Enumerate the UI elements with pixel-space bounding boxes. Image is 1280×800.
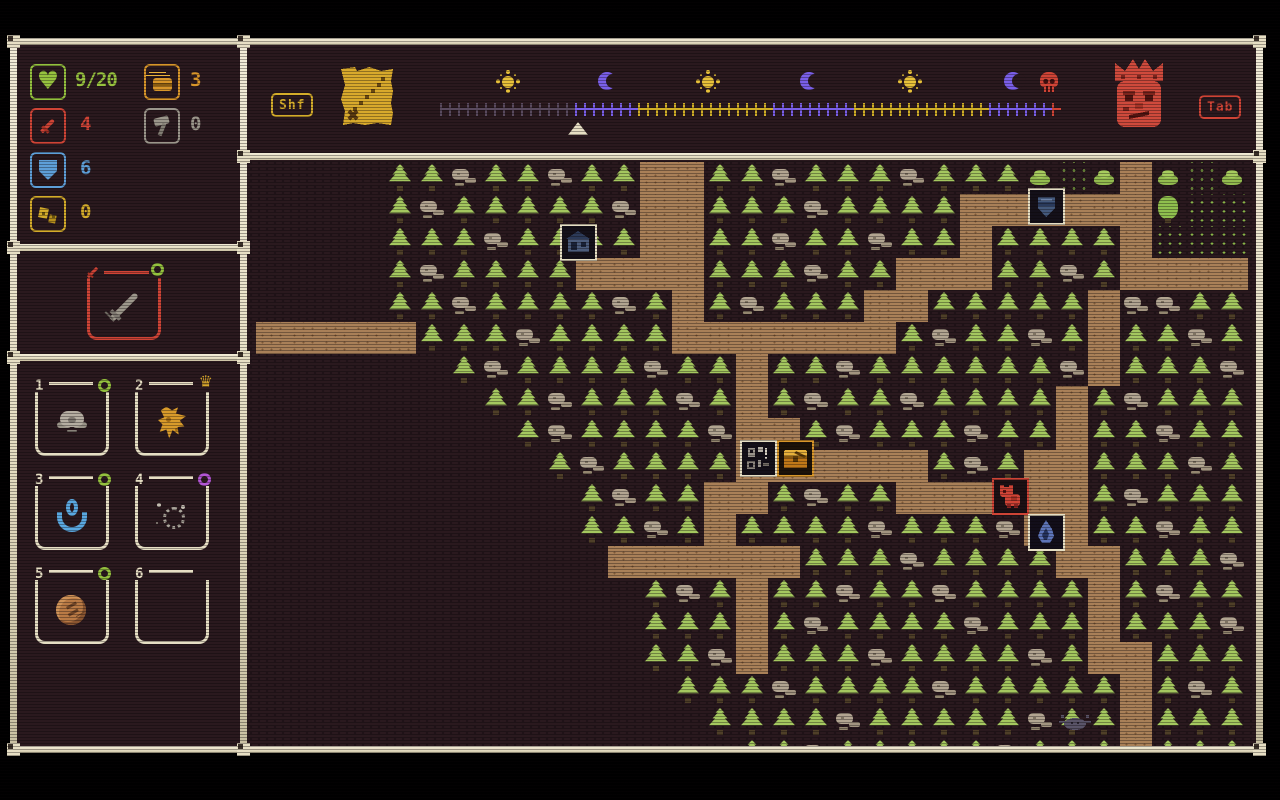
- timeline-icons: [440, 70, 1061, 96]
- tab-keycap: Tab: [1199, 95, 1241, 119]
- timeline-tick: [593, 103, 595, 116]
- timeline-tick: [953, 103, 955, 116]
- frame-line: [10, 354, 247, 361]
- slot-item-icon: [51, 593, 93, 629]
- gold-icon: [150, 70, 174, 94]
- map-marker-cabin[interactable]: [560, 224, 597, 261]
- frame-corner-rivet: [237, 743, 250, 756]
- frame-corner-rivet: [7, 241, 20, 254]
- frame-line: [10, 38, 17, 753]
- timeline-tick: [818, 103, 820, 116]
- moon-icon: [596, 70, 620, 94]
- equipped-sword-icon: [101, 285, 147, 331]
- inventory-panel: 1 2 ♛ 3 4 5 6: [17, 361, 240, 746]
- stats-panel: ♥ 9/20 3 4 0 6 0: [17, 45, 240, 244]
- timeline-tick: [962, 103, 964, 116]
- scrap-icon: [36, 202, 60, 226]
- timeline-tick: [692, 103, 694, 116]
- inventory-slot-3[interactable]: 3: [35, 472, 111, 554]
- frame-corner-rivet: [237, 150, 250, 163]
- timeline-tick: [503, 103, 505, 116]
- defense-stat: [30, 152, 66, 188]
- timeline-tick: [845, 103, 847, 116]
- timeline-ticks: [440, 103, 1061, 117]
- dwarf-king-icon[interactable]: [1109, 55, 1169, 135]
- timeline-tick: [899, 103, 901, 116]
- timeline-tick: [872, 103, 874, 116]
- timeline-tick: [602, 103, 604, 116]
- slot-item-icon: [151, 593, 193, 629]
- timeline-tick: [854, 103, 856, 116]
- timeline-tick: [1016, 103, 1018, 116]
- timeline-tick: [809, 103, 811, 116]
- frame-corner-rivet: [7, 743, 20, 756]
- timeline-tick: [539, 103, 541, 116]
- topbar: Shf Tab: [247, 45, 1256, 153]
- inventory-slot-5[interactable]: 5: [35, 566, 111, 648]
- treasure-map-icon[interactable]: [337, 65, 397, 131]
- world-map[interactable]: [247, 160, 1256, 746]
- frame-corner-rivet: [237, 351, 250, 364]
- defense-value: 6: [80, 157, 90, 179]
- inventory-slot-1[interactable]: 1: [35, 378, 111, 460]
- moon-icon: [1002, 70, 1026, 94]
- timeline-tick: [791, 103, 793, 116]
- frame-corner-rivet: [237, 35, 250, 48]
- slot-badge-icon: [98, 379, 111, 392]
- timeline-tick: [782, 103, 784, 116]
- timeline-tick: [773, 103, 775, 116]
- timeline-tick: [656, 103, 658, 116]
- timeline-tick: [935, 103, 937, 116]
- sun-icon: [696, 70, 720, 94]
- hammer-icon: [150, 114, 174, 138]
- frame-corner-rivet: [7, 351, 20, 364]
- scrap-value: 0: [80, 201, 90, 223]
- frame-corner-rivet: [1253, 35, 1266, 48]
- gold-stat: [144, 64, 180, 100]
- timeline-tick: [908, 103, 910, 116]
- timeline-tick: [440, 103, 442, 116]
- sword-icon: [36, 114, 60, 138]
- timeline-tick: [584, 103, 586, 116]
- slot-line: [149, 476, 193, 479]
- timeline-tick: [566, 103, 568, 116]
- slot-item-icon: [51, 405, 93, 441]
- timeline-tick: [728, 103, 730, 116]
- timeline-tick: [836, 103, 838, 116]
- map-marker-bear[interactable]: [992, 478, 1029, 515]
- timeline-tick: [746, 103, 748, 116]
- slot-item-icon: [51, 499, 93, 535]
- sun-icon: [898, 70, 922, 94]
- timeline-progress-marker: [568, 122, 588, 135]
- timeline-tick: [674, 103, 676, 116]
- timeline-tick: [548, 103, 550, 116]
- timeline-tick: [521, 103, 523, 116]
- map-marker-flame[interactable]: [1028, 514, 1065, 551]
- timeline-tick: [881, 103, 883, 116]
- slot-badge-icon: [198, 473, 211, 486]
- timeline-rail-night: [773, 108, 854, 110]
- map-marker-chest[interactable]: [777, 440, 814, 477]
- skull-icon: [1038, 70, 1062, 94]
- weapon-slot[interactable]: [87, 278, 161, 340]
- timeline-tick: [980, 103, 982, 116]
- timeline-tick: [917, 103, 919, 116]
- timeline-tick: [476, 103, 478, 116]
- frame-corner-rivet: [7, 35, 20, 48]
- timeline-tick: [863, 103, 865, 116]
- health-stat: ♥: [30, 64, 66, 100]
- timeline-tick: [890, 103, 892, 116]
- slot-line: [149, 382, 193, 385]
- timeline-tick: [719, 103, 721, 116]
- map-marker-layer: [247, 160, 1256, 746]
- slot-badge-icon: ♛: [199, 375, 213, 389]
- timeline-tick: [611, 103, 613, 116]
- timeline-tick: [800, 103, 802, 116]
- timeline-tick: [1025, 103, 1027, 116]
- inventory-slot-4[interactable]: 4: [135, 472, 211, 554]
- slot-badge-icon: [98, 473, 111, 486]
- timeline-tick: [638, 103, 640, 116]
- timeline-tick: [827, 103, 829, 116]
- timeline-tick: [647, 103, 649, 116]
- slot-item-icon: [151, 405, 193, 441]
- game-screen: ♥ 9/20 3 4 0 6 0 1: [0, 0, 1280, 800]
- equipment-panel: [17, 251, 240, 354]
- slot-line: [49, 570, 93, 573]
- reroll-icon: [151, 263, 164, 276]
- timeline-tick: [701, 103, 703, 116]
- attack-value: 4: [80, 113, 90, 135]
- slot-line: [49, 382, 93, 385]
- timeline-tick: [737, 103, 739, 116]
- shift-keycap: Shf: [271, 93, 313, 117]
- heart-icon: ♥: [37, 68, 59, 93]
- timeline-tick: [512, 103, 514, 116]
- timeline-tick: [458, 103, 460, 116]
- frame-corner-rivet: [1253, 743, 1266, 756]
- timeline-tick: [530, 103, 532, 116]
- frame-line: [1256, 38, 1263, 753]
- hammer-value: 0: [190, 113, 200, 135]
- timeline-tick: [926, 103, 928, 116]
- map-marker-runes[interactable]: [740, 440, 777, 477]
- map-marker-shield-shop[interactable]: [1028, 188, 1065, 225]
- timeline-tick: [620, 103, 622, 116]
- slot-line: [149, 570, 193, 573]
- timeline-rail-day: [854, 108, 989, 110]
- map-marker-spider[interactable]: [1053, 712, 1097, 730]
- timeline-tick: [575, 103, 577, 116]
- frame-line: [10, 38, 1263, 45]
- timeline-rail-day: [638, 108, 773, 110]
- timeline-tick: [1007, 103, 1009, 116]
- day-night-timeline: [440, 70, 1061, 150]
- timeline-tick: [494, 103, 496, 116]
- slot-line: [49, 476, 93, 479]
- timeline-tick: [1034, 103, 1036, 116]
- timeline-tick: [1052, 103, 1054, 116]
- timeline-tick: [665, 103, 667, 116]
- frame-line: [240, 153, 1263, 160]
- timeline-tick: [449, 103, 451, 116]
- hammer-stat: [144, 108, 180, 144]
- frame-line: [10, 244, 247, 251]
- frame-corner-rivet: [237, 241, 250, 254]
- moon-icon: [798, 70, 822, 94]
- sun-icon: [496, 70, 520, 94]
- inventory-slot-2[interactable]: 2 ♛: [135, 378, 211, 460]
- slot-line: [104, 271, 149, 274]
- timeline-tick: [485, 103, 487, 116]
- shield-icon: [39, 160, 57, 180]
- timeline-tick: [998, 103, 1000, 116]
- timeline-rail-past: [440, 108, 575, 110]
- gold-value: 3: [190, 69, 200, 91]
- timeline-tick: [629, 103, 631, 116]
- timeline-tick: [764, 103, 766, 116]
- timeline-tick: [467, 103, 469, 116]
- scrap-stat: [30, 196, 66, 232]
- timeline-tick: [557, 103, 559, 116]
- slot-item-icon: [151, 499, 193, 535]
- health-value: 9/20: [75, 69, 117, 91]
- timeline-tick: [971, 103, 973, 116]
- slot-badge-icon: [98, 567, 111, 580]
- timeline-tick: [944, 103, 946, 116]
- timeline-tick: [683, 103, 685, 116]
- timeline-tick: [710, 103, 712, 116]
- timeline-tick: [989, 103, 991, 116]
- frame-corner-rivet: [1253, 150, 1266, 163]
- frame-line: [10, 746, 1263, 753]
- inventory-slot-6[interactable]: 6: [135, 566, 211, 648]
- timeline-tick: [755, 103, 757, 116]
- frame-line: [240, 38, 247, 753]
- attack-stat: [30, 108, 66, 144]
- timeline-tick: [1043, 103, 1045, 116]
